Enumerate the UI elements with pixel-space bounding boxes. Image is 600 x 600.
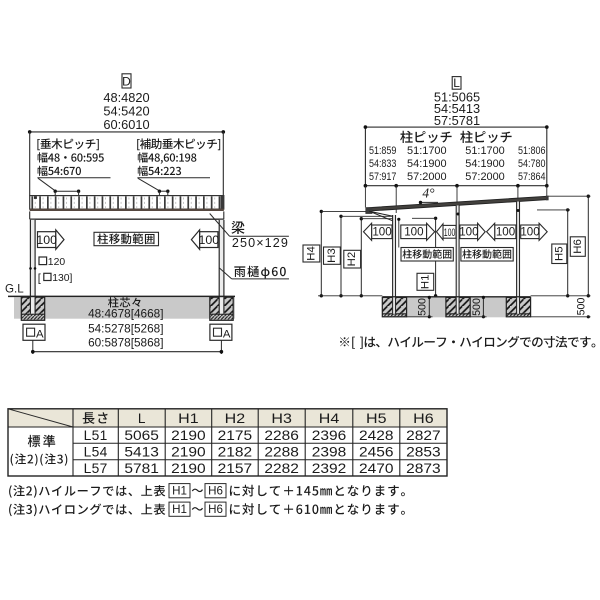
svg-text:54:780: 54:780: [518, 158, 546, 170]
svg-text:2282: 2282: [264, 461, 299, 476]
svg-text:100: 100: [459, 226, 478, 239]
svg-text:2396: 2396: [312, 428, 347, 443]
svg-text:54:833: 54:833: [369, 158, 397, 170]
svg-text:2175: 2175: [218, 428, 253, 443]
svg-text:L51: L51: [84, 428, 108, 443]
svg-text:57:917: 57:917: [369, 171, 397, 183]
svg-text:100: 100: [372, 226, 391, 239]
svg-text:H1: H1: [172, 485, 187, 498]
svg-text:H5: H5: [366, 411, 387, 426]
svg-text:H6: H6: [413, 411, 434, 426]
svg-text:H3: H3: [326, 248, 338, 263]
svg-text:57:2000: 57:2000: [407, 171, 447, 183]
svg-text:2470: 2470: [359, 461, 394, 476]
svg-text:L: L: [453, 76, 460, 90]
svg-text:51:859: 51:859: [369, 145, 397, 157]
svg-text:2190: 2190: [171, 444, 206, 459]
svg-text:57:2000: 57:2000: [465, 171, 505, 183]
svg-text:L54: L54: [84, 444, 108, 459]
svg-text:100: 100: [36, 233, 57, 247]
svg-text:4°: 4°: [422, 185, 435, 200]
svg-text:250×129: 250×129: [232, 236, 289, 250]
svg-text:2288: 2288: [264, 444, 299, 459]
svg-text:2456: 2456: [359, 444, 394, 459]
svg-text:100: 100: [444, 227, 456, 239]
svg-text:51:1700: 51:1700: [465, 145, 505, 157]
svg-text:A: A: [36, 328, 44, 340]
svg-text:2392: 2392: [312, 461, 347, 476]
svg-text:60:5878[5868]: 60:5878[5868]: [88, 336, 163, 350]
svg-text:H6: H6: [208, 485, 223, 498]
svg-text:54:1900: 54:1900: [407, 158, 447, 170]
svg-text:2157: 2157: [218, 461, 253, 476]
svg-text:2286: 2286: [264, 428, 299, 443]
svg-text:2827: 2827: [406, 428, 441, 443]
svg-text:H6: H6: [572, 239, 584, 254]
svg-text:54:5278[5268]: 54:5278[5268]: [88, 321, 163, 335]
svg-text:5413: 5413: [124, 444, 159, 459]
svg-text:D: D: [122, 74, 131, 88]
svg-text:2190: 2190: [171, 461, 206, 476]
svg-text:H1: H1: [419, 275, 431, 290]
svg-text:G.L: G.L: [5, 283, 24, 296]
svg-text:100: 100: [496, 226, 515, 239]
svg-text:2398: 2398: [312, 444, 347, 459]
svg-text:2190: 2190: [171, 428, 206, 443]
svg-text:H5: H5: [553, 246, 565, 261]
svg-text:130]: 130]: [52, 273, 72, 284]
svg-text:[: [: [38, 272, 41, 284]
svg-text:57:5781: 57:5781: [434, 113, 480, 128]
svg-text:51:1700: 51:1700: [407, 145, 447, 157]
svg-text:5781: 5781: [124, 461, 159, 476]
svg-text:H1: H1: [178, 411, 199, 426]
svg-text:120: 120: [48, 257, 66, 268]
svg-text:54:1900: 54:1900: [465, 158, 505, 170]
svg-text:100: 100: [198, 233, 219, 247]
svg-text:2428: 2428: [359, 428, 394, 443]
svg-text:60:6010: 60:6010: [103, 117, 149, 132]
svg-text:H1: H1: [172, 503, 187, 516]
svg-text:51:806: 51:806: [518, 145, 546, 157]
svg-text:L57: L57: [84, 461, 108, 476]
svg-text:A: A: [223, 328, 231, 340]
svg-text:57:864: 57:864: [518, 171, 546, 183]
svg-text:H6: H6: [208, 503, 223, 516]
svg-text:H3: H3: [271, 411, 292, 426]
svg-text:2873: 2873: [406, 461, 441, 476]
svg-text:500: 500: [471, 298, 483, 316]
svg-text:100: 100: [404, 226, 423, 239]
svg-text:H2: H2: [225, 411, 246, 426]
svg-text:L: L: [138, 411, 146, 426]
svg-text:2182: 2182: [218, 444, 253, 459]
svg-text:H4: H4: [305, 246, 317, 261]
svg-text:500: 500: [575, 298, 587, 316]
svg-text:2853: 2853: [406, 444, 441, 459]
svg-text:H2: H2: [346, 252, 358, 267]
svg-text:H4: H4: [319, 411, 340, 426]
svg-text:5065: 5065: [124, 428, 159, 443]
svg-text:100: 100: [520, 226, 539, 239]
svg-text:48:4678[4668]: 48:4678[4668]: [88, 306, 163, 320]
svg-text:500: 500: [417, 298, 429, 316]
